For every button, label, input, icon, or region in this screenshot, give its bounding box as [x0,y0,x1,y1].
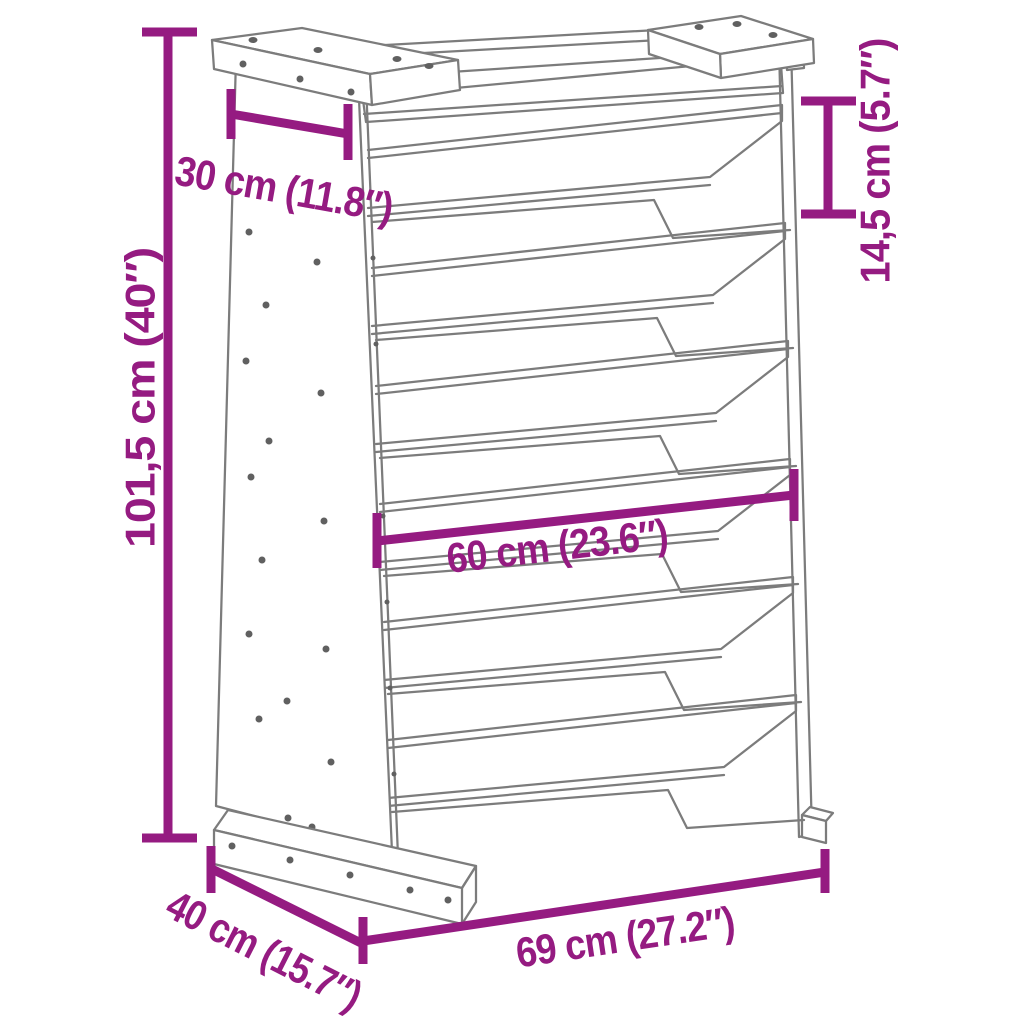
shelf-tier-3 [376,341,796,474]
dimension-label-base-depth: 40 cm (15.7″) [159,881,369,1019]
dimension-label-overall-height: 101,5 cm (40″) [117,248,164,548]
diagram-canvas: 101,5 cm (40″) 30 cm (11.8″) 14,5 cm (5.… [0,0,1024,1024]
right-side-rail [779,45,812,837]
product-dimension-diagram: 101,5 cm (40″) 30 cm (11.8″) 14,5 cm (5.… [0,0,1024,1024]
shelf-tier-1 [368,105,790,238]
dimension-label-tier-spacing: 14,5 cm (5.7″) [852,39,899,284]
dimension-tier-spacing: 14,5 cm (5.7″) [801,39,899,284]
right-foot [802,807,833,843]
shelf-tier-5 [384,577,801,710]
planter-drawing [212,16,833,924]
shelf-tier-2 [372,223,793,356]
shelf-tier-6 [388,695,804,828]
